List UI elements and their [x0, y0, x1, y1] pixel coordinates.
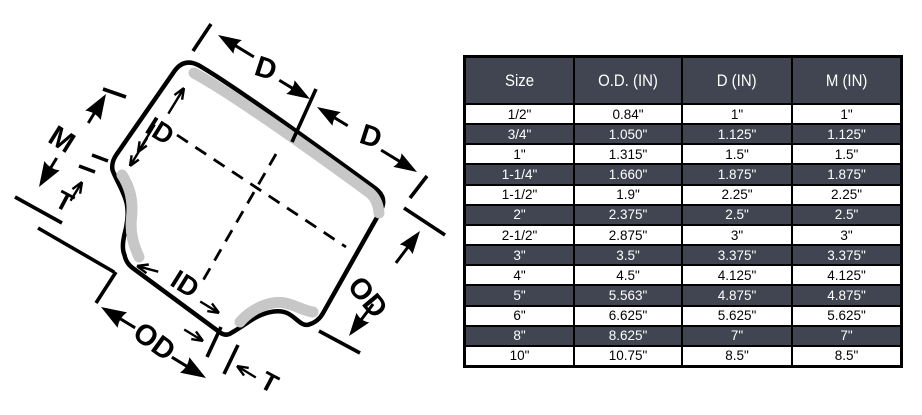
- svg-text:M: M: [43, 120, 80, 160]
- svg-text:OD: OD: [341, 271, 393, 325]
- svg-text:T: T: [255, 365, 283, 399]
- svg-text:T: T: [50, 184, 78, 218]
- svg-text:OD: OD: [127, 316, 181, 367]
- svg-text:D: D: [356, 118, 386, 155]
- svg-text:D: D: [251, 50, 281, 87]
